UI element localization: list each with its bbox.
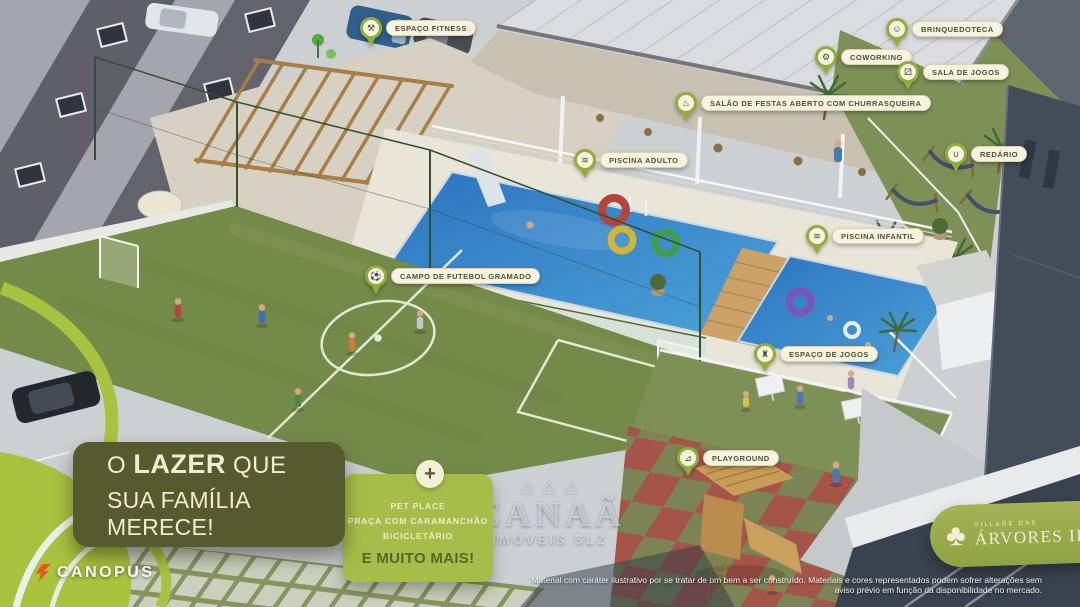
developer-logo-text: CANOPUS bbox=[57, 564, 155, 582]
plus-icon: + bbox=[416, 460, 444, 488]
project-logo: ♣ VILLAGE DAS ÁRVORES III bbox=[929, 500, 1080, 568]
tree-icon: ♣ bbox=[946, 521, 967, 552]
callout-label: SALA DE JOGOS bbox=[923, 64, 1009, 80]
callout-espaco-de-jogos: ♜ ESPAÇO DE JOGOS bbox=[754, 343, 878, 365]
map-pin: ♜ bbox=[754, 343, 776, 365]
callout-label: ESPAÇO FITNESS bbox=[386, 20, 476, 36]
callout-sala-de-jogos: ⚂ SALA DE JOGOS bbox=[897, 61, 1009, 83]
swimmer-icon: ≋ bbox=[809, 228, 825, 244]
map-pin: ☺ bbox=[886, 18, 908, 40]
map-pin: ≋ bbox=[806, 225, 828, 247]
teddy-bear-icon: ☺ bbox=[889, 21, 905, 37]
callout-label: BRINQUEDOTECA bbox=[912, 21, 1003, 37]
extras-item-bicicletario: BICICLETÁRIO bbox=[383, 529, 453, 544]
callout-piscina-infantil: ≋ PISCINA INFANTIL bbox=[806, 225, 924, 247]
board-game-icon: ♜ bbox=[757, 346, 773, 362]
extras-item-praca: PRAÇA COM CARAMANCHÃO bbox=[348, 514, 488, 529]
canopus-mark-icon bbox=[36, 564, 51, 582]
extras-emphasis: E MUITO MAIS! bbox=[362, 550, 475, 567]
map-pin: ♨ bbox=[675, 92, 697, 114]
callout-campo-de-futebol: ⚽ CAMPO DE FUTEBOL GRAMADO bbox=[365, 265, 540, 287]
callout-salao-de-festas: ♨ SALÃO DE FESTAS ABERTO COM CHURRASQUEI… bbox=[675, 92, 931, 114]
callout-label: PISCINA ADULTO bbox=[600, 152, 688, 168]
soccer-ball-icon: ⚽ bbox=[368, 268, 384, 284]
callout-label: ESPAÇO DE JOGOS bbox=[780, 346, 878, 362]
map-pin: ∪ bbox=[945, 143, 967, 165]
barbecue-icon: ♨ bbox=[678, 95, 694, 111]
map-pin: ⚒ bbox=[360, 17, 382, 39]
headline-line1: O LAZER QUE bbox=[107, 449, 345, 480]
person-on-deck bbox=[834, 140, 842, 162]
callout-label: CAMPO DE FUTEBOL GRAMADO bbox=[391, 268, 540, 284]
swimmer-icon: ≋ bbox=[577, 152, 593, 168]
callout-label: REDÁRIO bbox=[971, 146, 1027, 162]
callout-label: PISCINA INFANTIL bbox=[832, 228, 924, 244]
dumbbell-icon: ⚒ bbox=[363, 20, 379, 36]
slide-icon: ⊿ bbox=[680, 450, 696, 466]
extras-item-pet-place: PET PLACE bbox=[391, 499, 446, 514]
marketing-image: ⚒ ESPAÇO FITNESS ☺ BRINQUEDOTECA ⚙ COWOR… bbox=[0, 0, 1080, 607]
callout-label: SALÃO DE FESTAS ABERTO COM CHURRASQUEIRA bbox=[701, 95, 931, 111]
disclaimer-line1: Material com caráter ilustrativo por se … bbox=[531, 575, 1042, 585]
map-pin: ⚂ bbox=[897, 61, 919, 83]
callout-piscina-adulto: ≋ PISCINA ADULTO bbox=[574, 149, 688, 171]
callout-redario: ∪ REDÁRIO bbox=[945, 143, 1027, 165]
callout-brinquedoteca: ☺ BRINQUEDOTECA bbox=[886, 18, 1003, 40]
gamepad-icon: ⚂ bbox=[900, 64, 916, 80]
legal-disclaimer: Material com caráter ilustrativo por se … bbox=[531, 575, 1042, 595]
disclaimer-line2: aviso prévio em função da disponibilidad… bbox=[531, 585, 1042, 595]
map-pin: ⚽ bbox=[365, 265, 387, 287]
map-pin: ≋ bbox=[574, 149, 596, 171]
developer-logo: CANOPUS bbox=[36, 564, 155, 582]
headline-line2: SUA FAMÍLIA MERECE! bbox=[107, 487, 345, 541]
map-pin: ⚙ bbox=[815, 46, 837, 68]
hammock-icon: ∪ bbox=[948, 146, 964, 162]
project-logo-text: VILLAGE DAS ÁRVORES III bbox=[974, 518, 1080, 549]
extras-box: + PET PLACE PRAÇA COM CARAMANCHÃO BICICL… bbox=[343, 474, 493, 582]
callout-label: PLAYGROUND bbox=[703, 450, 779, 466]
map-pin: ⊿ bbox=[677, 447, 699, 469]
project-logo-name: ÁRVORES III bbox=[974, 525, 1080, 549]
workstation-icon: ⚙ bbox=[818, 49, 834, 65]
callout-espaco-fitness: ⚒ ESPAÇO FITNESS bbox=[360, 17, 476, 39]
callout-playground: ⊿ PLAYGROUND bbox=[677, 447, 779, 469]
headline-box: O LAZER QUE SUA FAMÍLIA MERECE! bbox=[73, 442, 345, 547]
